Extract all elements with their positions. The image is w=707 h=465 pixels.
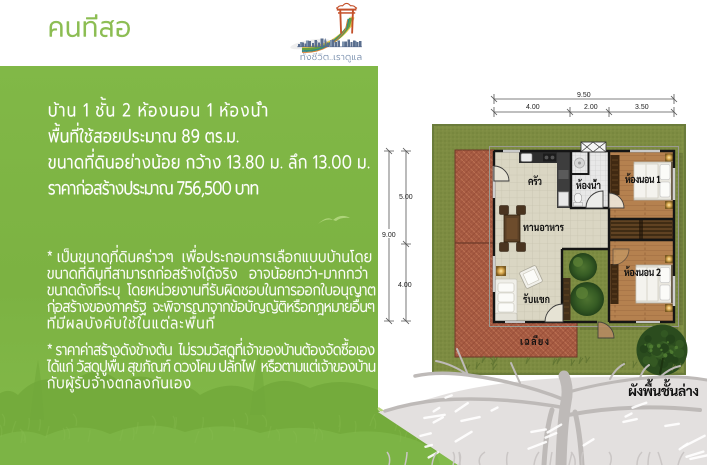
svg-text:2.00: 2.00 <box>584 104 598 111</box>
svg-text:4.00: 4.00 <box>398 282 412 289</box>
svg-text:9.00: 9.00 <box>382 232 396 239</box>
svg-text:5.00: 5.00 <box>399 194 413 201</box>
svg-text:9.50: 9.50 <box>577 92 591 99</box>
svg-text:3.50: 3.50 <box>635 104 649 111</box>
svg-text:4.00: 4.00 <box>526 104 540 111</box>
